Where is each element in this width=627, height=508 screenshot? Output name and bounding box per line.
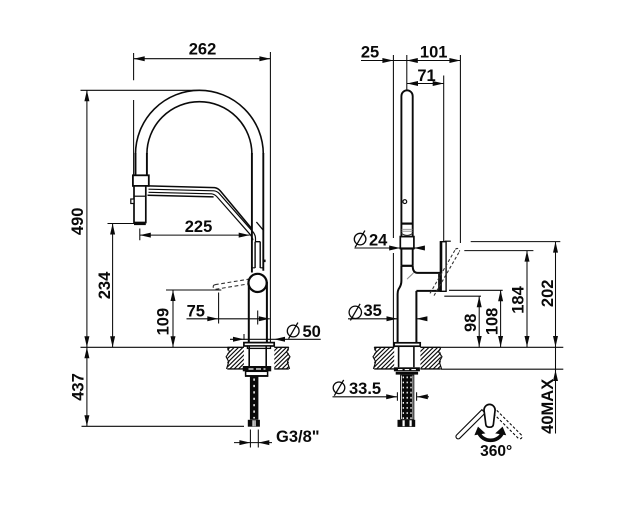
svg-text:24: 24 <box>369 231 388 249</box>
svg-text:33.5: 33.5 <box>349 380 381 398</box>
svg-text:202: 202 <box>539 280 557 308</box>
svg-text:108: 108 <box>484 308 502 336</box>
svg-text:50: 50 <box>303 323 321 341</box>
svg-text:225: 225 <box>185 218 213 236</box>
svg-text:G3/8": G3/8" <box>276 428 320 446</box>
svg-text:490: 490 <box>69 208 87 236</box>
svg-text:101: 101 <box>420 44 448 62</box>
svg-text:184: 184 <box>510 285 528 313</box>
svg-text:98: 98 <box>462 314 480 332</box>
svg-text:262: 262 <box>189 40 217 58</box>
svg-text:25: 25 <box>361 44 379 62</box>
svg-text:360°: 360° <box>480 443 512 460</box>
svg-text:75: 75 <box>187 303 205 321</box>
svg-text:437: 437 <box>70 373 88 401</box>
svg-text:109: 109 <box>154 308 172 336</box>
svg-text:71: 71 <box>417 67 435 85</box>
svg-text:40MAX: 40MAX <box>539 379 557 434</box>
svg-text:35: 35 <box>364 302 382 320</box>
svg-text:234: 234 <box>96 271 114 299</box>
